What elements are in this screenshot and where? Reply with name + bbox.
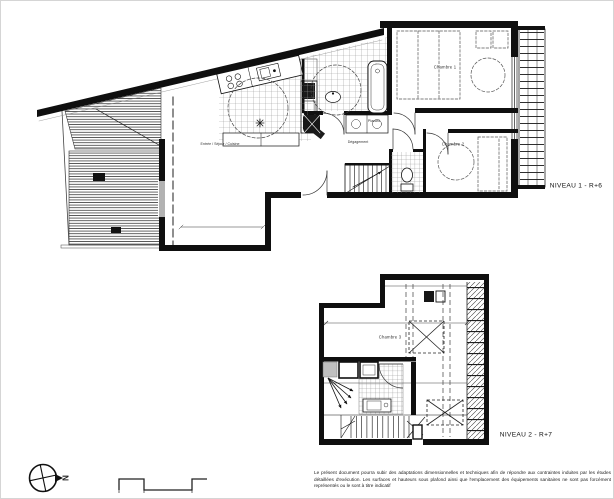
toilet — [402, 168, 413, 182]
roof-window-1 — [409, 321, 444, 353]
balcony-right — [518, 26, 545, 189]
door-bottom-level-2 — [412, 425, 423, 445]
turning-circle-chambre-2 — [438, 144, 474, 180]
wc — [391, 152, 423, 193]
furniture-level-2 — [323, 362, 378, 378]
floorplan-drawing — [1, 1, 614, 499]
floorplan-level-1 — [37, 21, 545, 251]
staircase-level-2 — [324, 415, 467, 438]
roof-window-2 — [427, 400, 463, 425]
floorplan-sheet: Entrée / Séjour / Cuisine Chambre 1 Cham… — [0, 0, 614, 499]
north-arrow-tip — [55, 474, 63, 482]
nightstand-2 — [493, 31, 508, 48]
closet-strip — [304, 115, 388, 133]
disclaimer-text: Le présent document pourra subir des ada… — [314, 470, 611, 490]
bed-chambre-2 — [478, 137, 507, 191]
window-terrace-wall — [158, 181, 166, 217]
dimension-line-living — [179, 225, 265, 229]
turning-circle-chambre-1 — [471, 58, 505, 92]
north-compass — [30, 465, 64, 492]
terrace-decking — [61, 88, 161, 248]
nightstand-1 — [476, 31, 491, 48]
floorplan-level-2 — [319, 274, 489, 445]
window-right-wall — [510, 57, 519, 139]
ceiling-fan-symbol — [256, 119, 264, 127]
staircase-level-1 — [345, 164, 391, 195]
slope-arrows — [328, 378, 353, 408]
scale-bar — [119, 479, 207, 493]
bed-chambre-1 — [397, 31, 460, 99]
sloped-ceiling-strip — [467, 282, 484, 439]
duct-blocks — [424, 291, 445, 302]
